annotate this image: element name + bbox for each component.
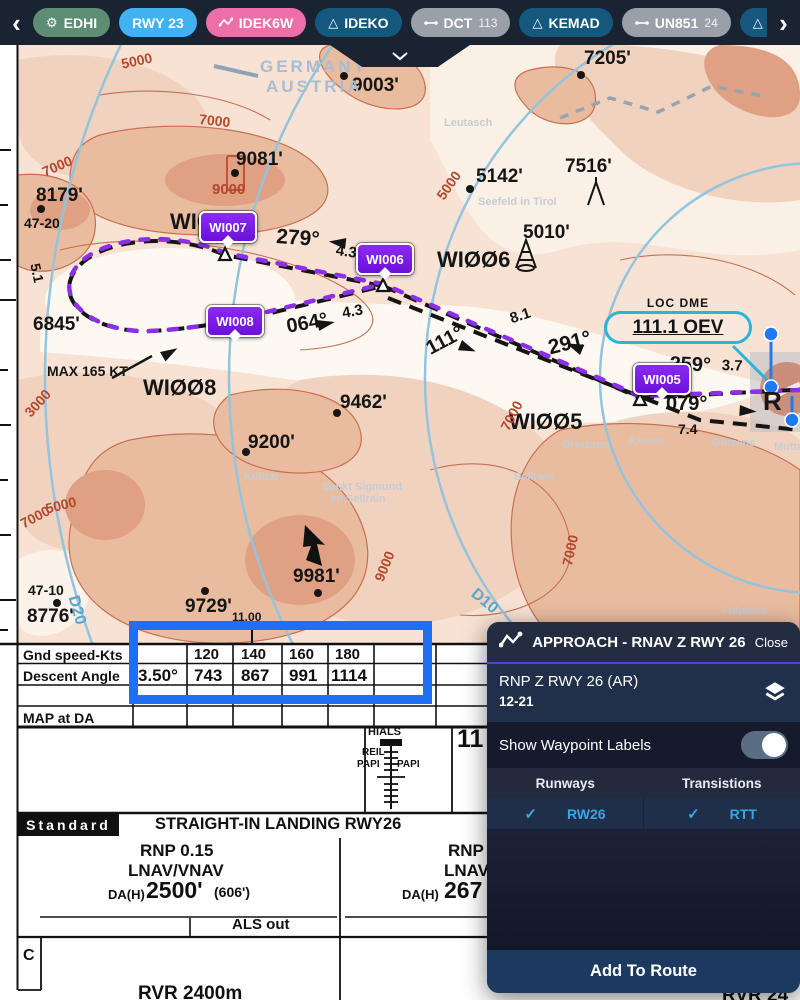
transition-option[interactable]: ✓ RTT [644,798,800,829]
route-pill-ideko[interactable]: △IDEKO [315,8,401,37]
pill-label: UN851 [655,15,699,31]
route-pill-un851[interactable]: UN85124 [622,8,731,37]
approach-panel-header: APPROACH - RNAV Z RWY 26 Close [487,622,800,662]
layers-icon[interactable] [762,680,788,709]
panel-empty-area [487,829,800,950]
panel-column-headers: Runways Transistions [487,768,800,798]
standard-minimums-tag: Standard [18,813,119,836]
pill-label: EDHI [64,15,97,31]
route-pill-idek6w[interactable]: IDEK6W [206,8,306,37]
procedure-row[interactable]: RNP Z RWY 26 (AR) 12-21 [487,664,800,722]
waypoint-labels-row: Show Waypoint Labels [487,722,800,768]
route-pills: ⚙EDHIRWY 23IDEK6W△IDEKODCT113△KEMADUN851… [33,0,767,45]
tab-runways[interactable]: Runways [487,768,644,798]
procedure-dates: 12-21 [499,694,788,709]
app-screen: 9003'7205'9081'90008179'47-205142'7516'5… [0,0,800,1000]
pill-label: IDEK6W [239,15,293,31]
waypoint-chip-label: WI007 [209,220,247,235]
waypoint-chip-wi008[interactable]: WI008 [206,305,264,337]
waypoint-chip-wi005[interactable]: WI005 [633,363,691,395]
airway-icon [635,19,649,27]
route-pill-kemad[interactable]: △KEMAD [519,8,612,37]
annotation-rectangle[interactable] [129,621,432,704]
pill-number: 24 [704,16,717,30]
waypoint-labels-label: Show Waypoint Labels [499,737,651,754]
airway-icon [424,19,438,27]
fix-triangle-icon: △ [328,15,338,31]
check-icon: ✓ [687,805,700,823]
pill-label: RWY 23 [132,15,184,31]
route-pill-rwy-23[interactable]: RWY 23 [119,8,197,37]
tab-transitions[interactable]: Transistions [644,768,800,798]
runway-option-label: RW26 [567,806,606,822]
route-scroll-right-chevron[interactable]: › [767,10,800,36]
waypoint-labels-toggle[interactable] [741,731,788,759]
approach-panel: APPROACH - RNAV Z RWY 26 Close RNP Z RWY… [487,622,800,993]
route-pill-dct[interactable]: DCT113 [411,8,511,37]
add-to-route-button[interactable]: Add To Route [487,950,800,993]
fix-triangle-icon: △ [753,15,763,31]
waypoint-chip-label: WI005 [643,372,681,387]
check-icon: ✓ [524,805,537,823]
panel-selection-row: ✓ RW26 ✓ RTT [487,798,800,829]
waypoint-chip-label: WI006 [366,252,404,267]
runway-option[interactable]: ✓ RW26 [487,798,644,829]
procedure-name: RNP Z RWY 26 (AR) [499,673,788,690]
close-button[interactable]: Close [755,635,788,650]
route-bar: ‹ ⚙EDHIRWY 23IDEK6W△IDEKODCT113△KEMADUN8… [0,0,800,45]
fix-triangle-icon: △ [532,15,542,31]
procedure-route-icon [219,17,233,28]
chevron-down-icon [391,51,409,61]
approach-panel-title: APPROACH - RNAV Z RWY 26 [531,634,747,651]
pill-label: IDEKO [344,15,388,31]
pill-number: 113 [478,16,497,30]
airport-icon: ⚙ [46,15,58,31]
transition-option-label: RTT [730,806,757,822]
route-icon [499,631,523,654]
route-pill-masek[interactable]: △MASEK [740,8,767,37]
route-scroll-left-chevron[interactable]: ‹ [0,10,33,36]
pill-label: KEMAD [548,15,599,31]
waypoint-chip-label: WI008 [216,314,254,329]
route-pill-edhi[interactable]: ⚙EDHI [33,8,110,37]
toggle-knob [762,733,786,757]
pill-label: DCT [444,15,473,31]
waypoint-chip-wi007[interactable]: WI007 [199,211,257,243]
waypoint-chip-wi006[interactable]: WI006 [356,243,414,275]
